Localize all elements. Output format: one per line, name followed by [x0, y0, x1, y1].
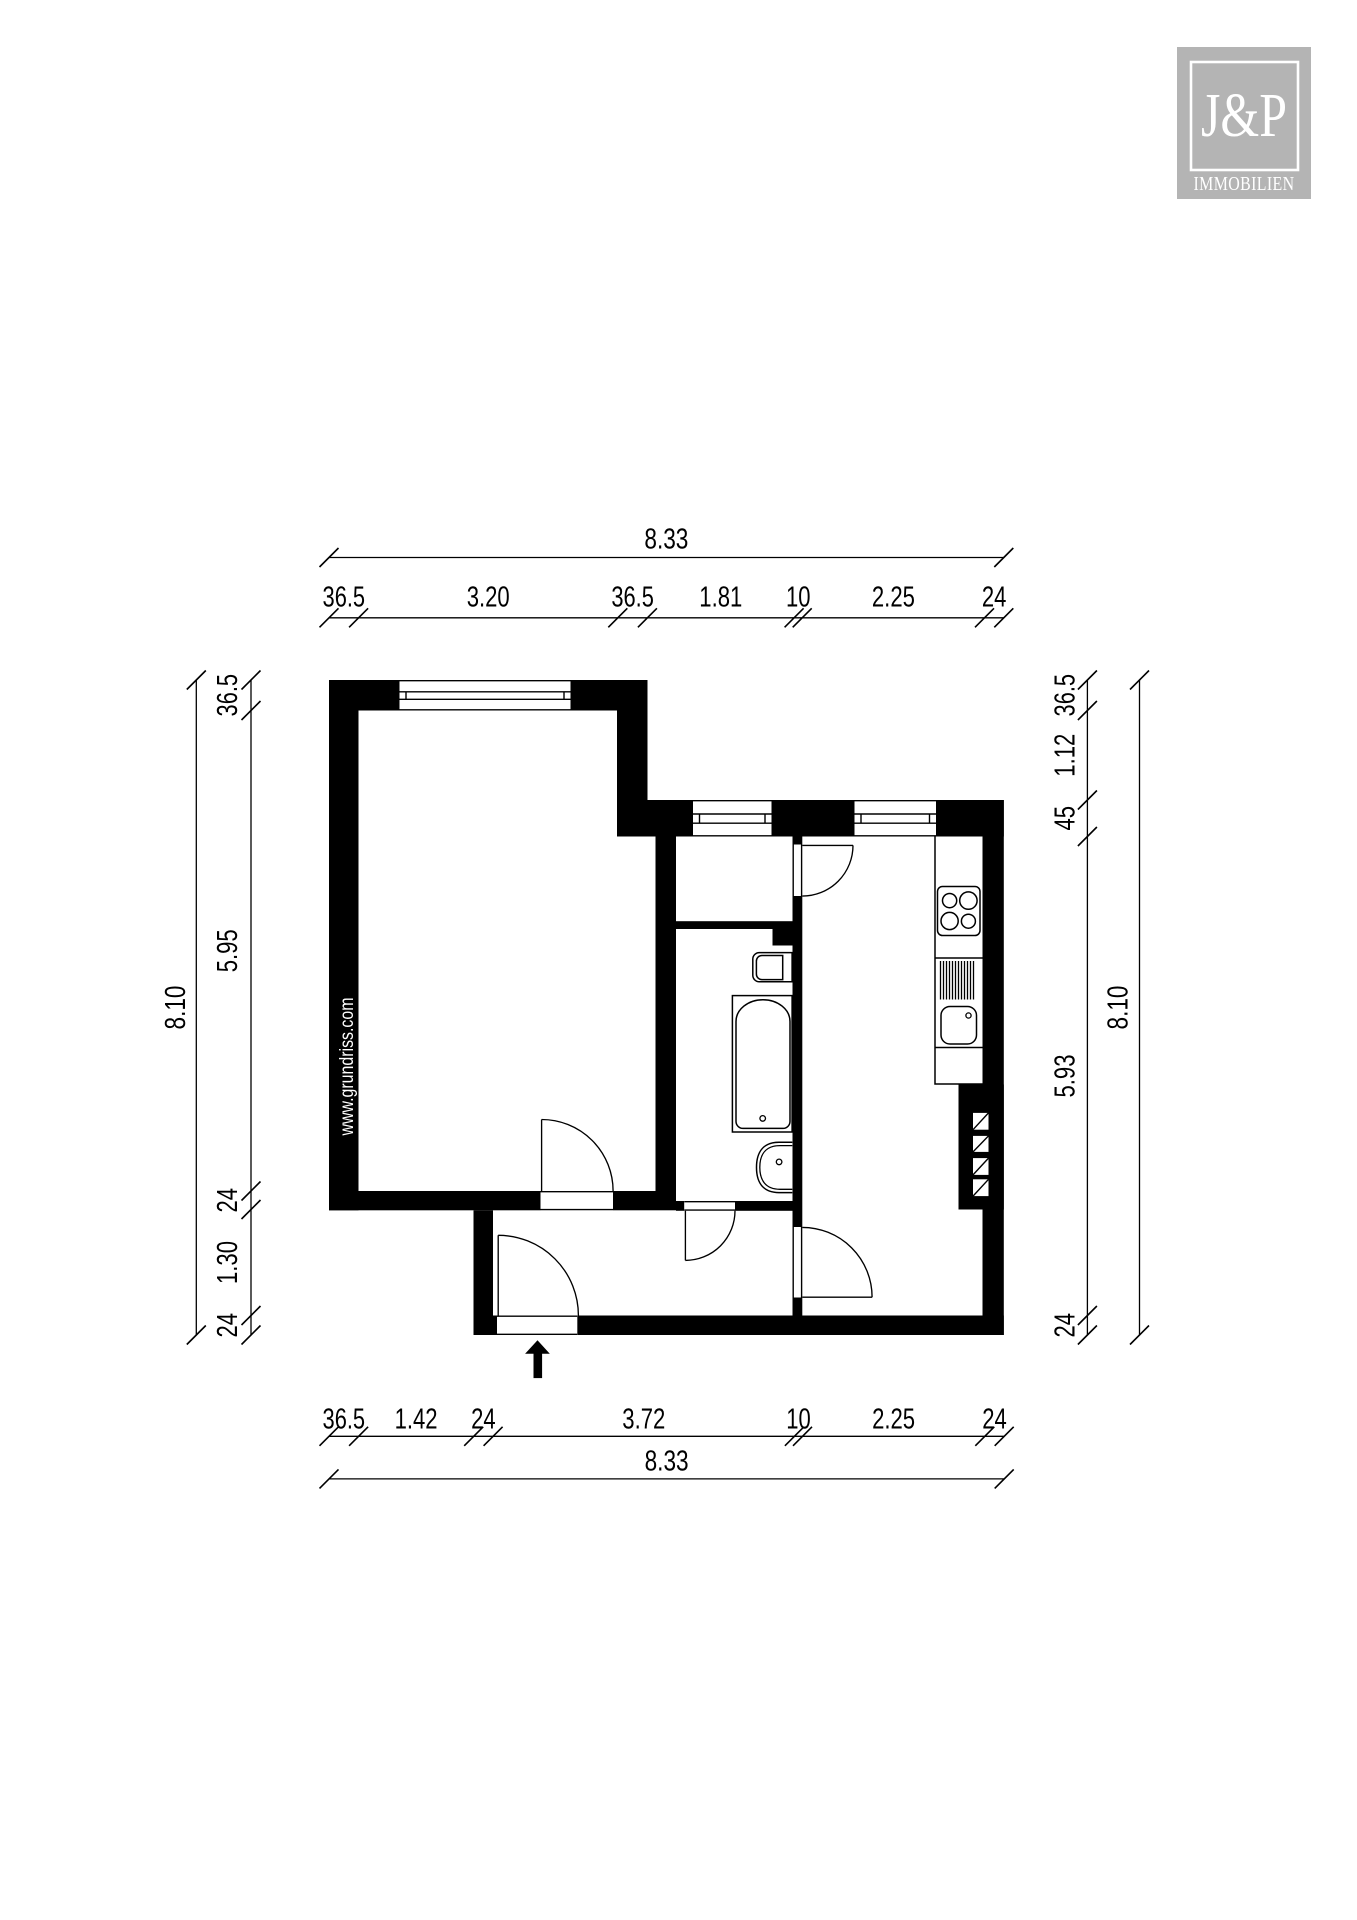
svg-text:36.5: 36.5: [323, 582, 366, 614]
svg-text:1.81: 1.81: [699, 582, 742, 614]
svg-text:10: 10: [786, 582, 811, 614]
svg-text:24: 24: [982, 582, 1007, 614]
svg-text:24: 24: [471, 1404, 496, 1436]
svg-text:10: 10: [786, 1404, 811, 1436]
svg-text:24: 24: [1050, 1313, 1082, 1338]
svg-text:3.72: 3.72: [622, 1404, 665, 1436]
svg-text:24: 24: [212, 1313, 244, 1338]
svg-text:2.25: 2.25: [872, 582, 915, 614]
svg-text:8.10: 8.10: [1103, 986, 1135, 1030]
svg-text:45: 45: [1050, 806, 1082, 831]
svg-text:www.grundriss.com: www.grundriss.com: [336, 998, 358, 1137]
svg-text:8.33: 8.33: [644, 524, 688, 556]
svg-text:8.33: 8.33: [645, 1446, 689, 1478]
svg-text:1.30: 1.30: [212, 1241, 244, 1284]
svg-text:2.25: 2.25: [872, 1404, 915, 1436]
svg-text:IMMOBILIEN: IMMOBILIEN: [1194, 173, 1295, 195]
svg-text:36.5: 36.5: [1050, 674, 1082, 717]
svg-text:24: 24: [982, 1404, 1007, 1436]
svg-text:5.95: 5.95: [212, 929, 244, 972]
svg-text:1.12: 1.12: [1050, 734, 1082, 777]
svg-text:36.5: 36.5: [212, 674, 244, 717]
svg-text:5.93: 5.93: [1050, 1055, 1082, 1098]
svg-text:J&P: J&P: [1201, 82, 1287, 150]
svg-text:8.10: 8.10: [160, 986, 192, 1030]
svg-text:24: 24: [212, 1188, 244, 1213]
svg-text:3.20: 3.20: [467, 582, 510, 614]
svg-text:36.5: 36.5: [323, 1404, 366, 1436]
svg-text:36.5: 36.5: [611, 582, 654, 614]
svg-text:1.42: 1.42: [395, 1404, 438, 1436]
